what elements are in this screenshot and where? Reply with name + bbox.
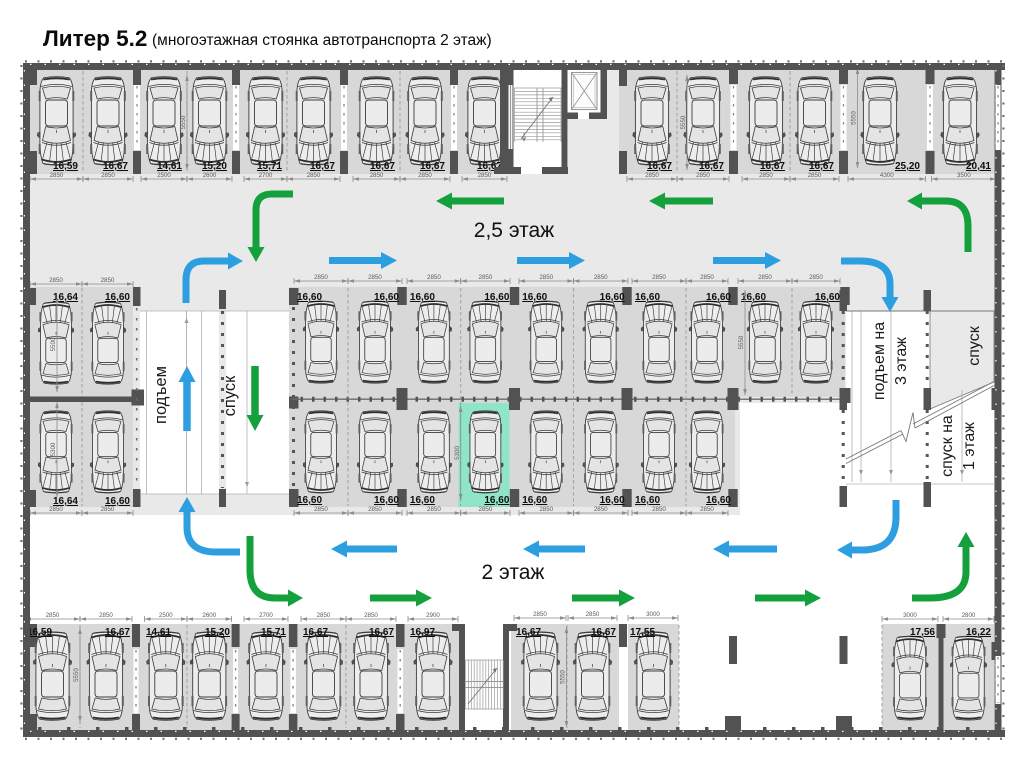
svg-text:5300: 5300: [50, 442, 57, 456]
svg-text:2850: 2850: [478, 172, 492, 179]
svg-text:2700: 2700: [259, 172, 273, 179]
svg-text:2850: 2850: [479, 274, 493, 281]
svg-text:16,60: 16,60: [635, 495, 660, 506]
svg-text:2850: 2850: [368, 274, 382, 281]
svg-text:16,60: 16,60: [374, 292, 399, 303]
svg-text:2850: 2850: [101, 172, 115, 179]
svg-text:16,60: 16,60: [522, 495, 547, 506]
svg-text:2850: 2850: [317, 612, 331, 619]
svg-text:16,67: 16,67: [105, 627, 130, 638]
svg-text:16,60: 16,60: [815, 292, 840, 303]
svg-text:2900: 2900: [426, 612, 440, 619]
svg-text:2850: 2850: [101, 506, 115, 513]
svg-text:16,60: 16,60: [635, 292, 660, 303]
svg-text:2600: 2600: [202, 612, 216, 619]
svg-text:2850: 2850: [364, 612, 378, 619]
svg-text:16,67: 16,67: [516, 627, 541, 638]
svg-text:16,22: 16,22: [966, 627, 991, 638]
svg-text:15,71: 15,71: [261, 627, 286, 638]
svg-text:2850: 2850: [539, 274, 553, 281]
svg-text:16,60: 16,60: [600, 495, 625, 506]
svg-text:16,59: 16,59: [27, 627, 52, 638]
svg-text:16,60: 16,60: [105, 292, 130, 303]
svg-text:2800: 2800: [962, 612, 976, 619]
svg-text:25,20: 25,20: [895, 161, 920, 172]
svg-text:15,20: 15,20: [202, 161, 227, 172]
svg-text:2850: 2850: [594, 274, 608, 281]
svg-text:16,60: 16,60: [600, 292, 625, 303]
svg-text:2850: 2850: [696, 172, 710, 179]
svg-text:2850: 2850: [809, 274, 823, 281]
svg-text:16,67: 16,67: [647, 161, 672, 172]
svg-text:спуск: спуск: [221, 375, 239, 416]
svg-text:14,61: 14,61: [146, 627, 171, 638]
svg-text:16,60: 16,60: [297, 495, 322, 506]
svg-text:2850: 2850: [645, 172, 659, 179]
svg-text:16,60: 16,60: [522, 292, 547, 303]
svg-text:2850: 2850: [50, 172, 64, 179]
svg-text:2850: 2850: [533, 611, 547, 618]
svg-text:5500: 5500: [50, 337, 57, 351]
svg-text:16,60: 16,60: [484, 292, 509, 303]
svg-text:14,61: 14,61: [157, 161, 182, 172]
svg-text:2850: 2850: [427, 506, 441, 513]
svg-text:20,41: 20,41: [966, 161, 991, 172]
svg-text:16,67: 16,67: [369, 627, 394, 638]
svg-text:2500: 2500: [159, 612, 173, 619]
svg-text:2850: 2850: [49, 506, 63, 513]
svg-text:2500: 2500: [157, 172, 171, 179]
svg-text:16,60: 16,60: [706, 495, 731, 506]
svg-text:2600: 2600: [203, 172, 217, 179]
svg-text:15,20: 15,20: [205, 627, 230, 638]
svg-text:17,56: 17,56: [910, 627, 935, 638]
svg-text:16,67: 16,67: [420, 161, 445, 172]
svg-text:5550: 5550: [851, 111, 858, 125]
svg-text:5300: 5300: [454, 446, 461, 460]
svg-text:16,60: 16,60: [374, 495, 399, 506]
svg-text:16,60: 16,60: [410, 292, 435, 303]
svg-text:16,67: 16,67: [760, 161, 785, 172]
svg-text:2850: 2850: [46, 612, 60, 619]
svg-text:спуск на: спуск на: [939, 415, 956, 477]
svg-text:подъем на: подъем на: [871, 322, 888, 400]
svg-text:2700: 2700: [259, 612, 273, 619]
svg-text:3500: 3500: [957, 172, 971, 179]
svg-text:5550: 5550: [560, 670, 567, 684]
svg-text:2850: 2850: [427, 274, 441, 281]
svg-text:2850: 2850: [479, 506, 493, 513]
svg-text:2850: 2850: [652, 274, 666, 281]
svg-text:2850: 2850: [586, 611, 600, 618]
svg-text:16,67: 16,67: [699, 161, 724, 172]
svg-text:3000: 3000: [903, 612, 917, 619]
svg-text:2850: 2850: [307, 172, 321, 179]
svg-text:(многоэтажная стоянка автотран: (многоэтажная стоянка автотранспорта 2 э…: [152, 32, 492, 49]
svg-text:16,67: 16,67: [809, 161, 834, 172]
svg-text:16,60: 16,60: [410, 495, 435, 506]
svg-text:2850: 2850: [700, 506, 714, 513]
svg-text:2850: 2850: [652, 506, 666, 513]
svg-text:3000: 3000: [646, 611, 660, 618]
svg-text:16,60: 16,60: [706, 292, 731, 303]
svg-text:2,5 этаж: 2,5 этаж: [474, 219, 554, 242]
svg-text:16,67: 16,67: [303, 627, 328, 638]
svg-text:2850: 2850: [594, 506, 608, 513]
svg-text:подъем: подъем: [152, 366, 170, 424]
svg-text:4300: 4300: [880, 172, 894, 179]
svg-text:2850: 2850: [314, 506, 328, 513]
svg-text:16,67: 16,67: [310, 161, 335, 172]
svg-text:2850: 2850: [314, 274, 328, 281]
svg-text:15,71: 15,71: [257, 161, 282, 172]
svg-text:3 этаж: 3 этаж: [893, 337, 910, 385]
svg-text:16,97: 16,97: [410, 627, 435, 638]
svg-text:2850: 2850: [808, 172, 822, 179]
svg-text:2850: 2850: [758, 274, 772, 281]
svg-text:2850: 2850: [99, 612, 113, 619]
svg-text:5550: 5550: [680, 115, 687, 129]
svg-text:16,60: 16,60: [297, 292, 322, 303]
svg-text:2850: 2850: [759, 172, 773, 179]
svg-text:16,67: 16,67: [103, 161, 128, 172]
svg-text:Литер 5.2: Литер 5.2: [43, 26, 147, 51]
svg-text:17,55: 17,55: [630, 627, 655, 638]
svg-text:спуск: спуск: [966, 325, 983, 365]
svg-text:2850: 2850: [539, 506, 553, 513]
svg-text:1 этаж: 1 этаж: [961, 422, 978, 470]
svg-text:2850: 2850: [368, 506, 382, 513]
svg-text:2850: 2850: [700, 274, 714, 281]
svg-text:2 этаж: 2 этаж: [482, 561, 545, 584]
svg-text:5550: 5550: [180, 115, 187, 129]
svg-text:2850: 2850: [418, 172, 432, 179]
svg-text:2850: 2850: [101, 277, 115, 284]
svg-text:16,59: 16,59: [53, 161, 78, 172]
svg-text:5550: 5550: [738, 335, 745, 349]
svg-text:2850: 2850: [370, 172, 384, 179]
svg-text:16,60: 16,60: [484, 495, 509, 506]
svg-text:5550: 5550: [73, 668, 80, 682]
svg-text:16,67: 16,67: [591, 627, 616, 638]
svg-text:16,67: 16,67: [370, 161, 395, 172]
svg-text:2850: 2850: [49, 277, 63, 284]
